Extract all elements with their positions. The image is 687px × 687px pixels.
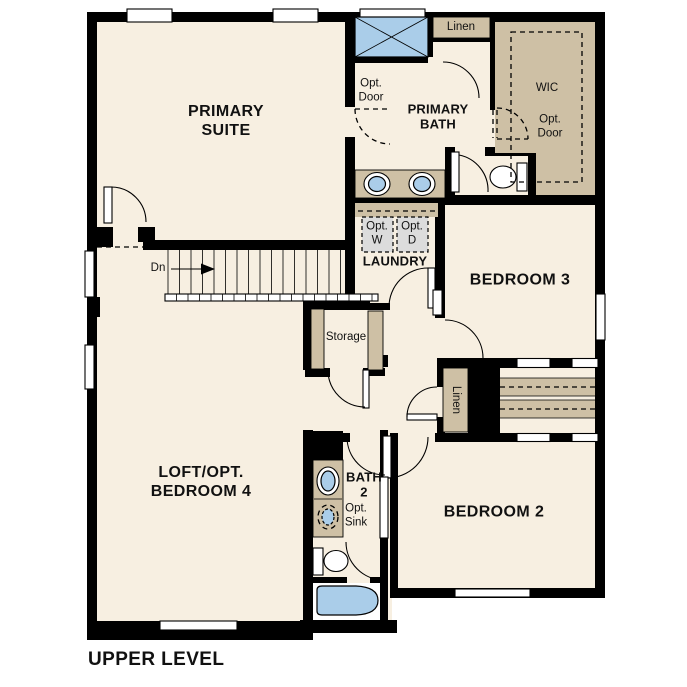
- window-bottom-bedroom2: [455, 589, 530, 597]
- wic-label: WIC: [536, 82, 558, 96]
- bathtub: [317, 586, 378, 615]
- storage-door-leaf: [363, 370, 369, 408]
- bath2-toilet-bowl: [324, 551, 348, 572]
- linen-door-leaf: [407, 414, 437, 420]
- opt-door-wic-label: Opt. Door: [538, 113, 563, 140]
- window-top-1: [127, 9, 172, 22]
- opt-sink-label: Opt. Sink: [345, 502, 367, 529]
- toilet-tank: [517, 163, 527, 191]
- window-left-1: [85, 251, 94, 297]
- down-label: Dn: [151, 262, 166, 276]
- plan-title: UPPER LEVEL: [88, 649, 224, 671]
- closet-slider-bottom-1: [517, 434, 550, 442]
- shower: [355, 17, 428, 57]
- bath2-label: BATH 2: [346, 470, 382, 501]
- loft-label: LOFT/OPT. BEDROOM 4: [151, 464, 252, 502]
- closet-slider-bottom-2: [572, 434, 598, 442]
- window-left-2: [85, 345, 94, 389]
- linen-top-label: Linen: [447, 21, 475, 35]
- primary-vanity: [355, 170, 445, 198]
- primary-suite-label: PRIMARY SUITE: [188, 103, 264, 141]
- storage-label: Storage: [326, 331, 366, 345]
- primary-bath-label: PRIMARY BATH: [408, 102, 469, 133]
- closet-slider-top-2: [572, 359, 598, 368]
- toilet-bowl: [490, 166, 516, 188]
- floorplan-canvas: PRIMARY SUITE PRIMARY BATH WIC Opt. Door…: [0, 0, 687, 687]
- window-bottom-loft: [160, 621, 237, 630]
- bedroom3-label: BEDROOM 3: [470, 272, 571, 291]
- bath2-toilet-tank: [313, 548, 323, 575]
- window-top-2: [273, 9, 318, 22]
- linen-closet-label: Linen: [448, 386, 462, 414]
- laundry-label: LAUNDRY: [363, 253, 427, 268]
- opt-dryer-label: Opt. D: [401, 220, 423, 247]
- bedroom2-closet: [500, 359, 598, 442]
- opt-door-bath-label: Opt. Door: [359, 77, 384, 104]
- stair-railing: [165, 294, 378, 301]
- bedroom2-label: BEDROOM 2: [444, 504, 545, 523]
- closet-slider-top-1: [517, 359, 550, 368]
- window-right-bedroom3: [596, 294, 605, 340]
- opt-washer-label: Opt. W: [366, 220, 388, 247]
